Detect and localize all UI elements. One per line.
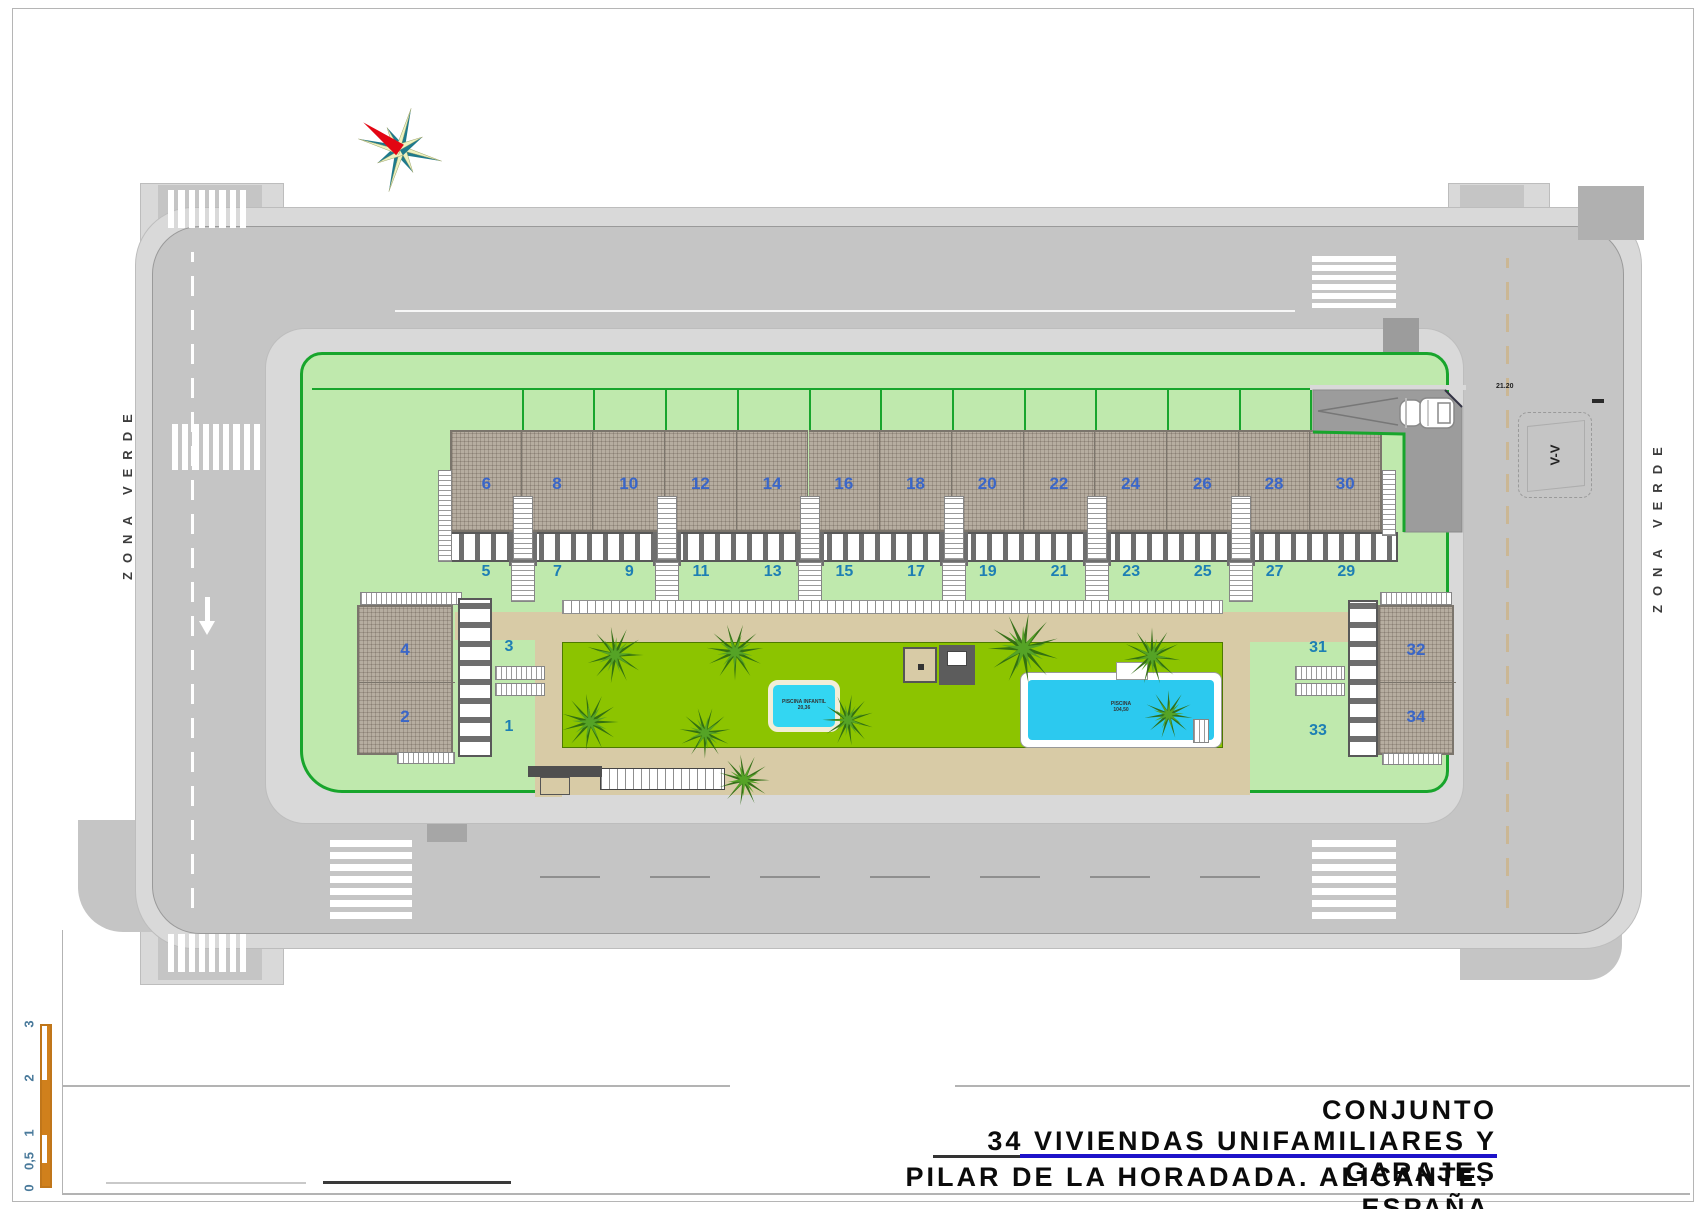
title-block-top-line [955,1085,1690,1087]
left-block-roof [357,605,453,755]
zebra-crossing-stripe [330,912,412,919]
zebra-crossing-stripe [330,900,412,907]
unit-number: 6 [482,474,491,494]
stair-shaft-lower [655,562,679,602]
zebra-crossing-stripe [1312,275,1396,281]
right-block-entry-strip [1382,753,1442,765]
stair-shaft-lower [1229,562,1253,602]
unit-number: 11 [693,563,710,581]
stair-shaft [657,496,677,560]
unit-number: 8 [552,474,561,494]
zebra-crossing-stripe [178,190,184,228]
left-block-garages [458,598,492,757]
stair-shaft-lower [511,562,535,602]
zebra-crossing-stripe [203,424,209,470]
zebra-crossing-stripe [330,888,412,895]
plot-divider [952,388,954,432]
plot-divider [1095,388,1097,432]
scale-bar [40,1024,52,1188]
bottom-road-lane-line [540,876,1300,878]
unit-number: 20 [978,474,997,494]
unit-number: 16 [834,474,853,494]
zebra-crossing-stripe [219,190,225,228]
zebra-crossing-stripe [230,934,236,972]
title-underline-blue [1020,1154,1497,1158]
stairs-left-a [495,666,545,680]
unit-number: 21 [1051,563,1069,581]
zebra-crossing-stripe [254,424,260,470]
site-plan-sheet: 6810121416182022242628305791113151719212… [0,0,1704,1209]
plot-divider [809,388,811,432]
stair-shaft [513,496,533,560]
zona-verde-right-label: ZONA VERDE [1650,428,1665,613]
unit-number: 9 [625,563,634,581]
zebra-crossing-stripe [1312,284,1396,290]
pump-room-dark [939,645,975,685]
kids-pool-area: 20,36 [798,705,811,711]
zebra-crossing-stripe [1312,876,1396,883]
unit-number: 10 [619,474,638,494]
unit-number: 27 [1266,563,1284,581]
zebra-crossing-stripe [168,190,174,228]
unit-number: 7 [553,563,562,581]
zebra-crossing-stripe [219,934,225,972]
zebra-crossing-stripe [1312,864,1396,871]
zebra-crossing-stripe [244,424,250,470]
palm-tree-icon [1122,626,1182,686]
frame-line [62,1085,730,1087]
stair-shaft-lower [798,562,822,602]
utility-block-top-right [1578,186,1644,240]
zebra-crossing-stripe [233,424,239,470]
project-location: PILAR DE LA HORADADA. ALICANTE. ESPAÑA [850,1162,1490,1209]
right-block-roof [1378,605,1454,755]
title-underline-dark [933,1155,1020,1158]
zebra-crossing-stripe [1312,265,1396,271]
unit-number: 32 [1407,640,1426,660]
plot-divider [522,388,524,432]
stair-shaft [1087,496,1107,560]
unit-number: 3 [505,638,514,656]
front-yard-line [312,388,1312,390]
plot-divider [665,388,667,432]
signature-line-dark [323,1181,511,1184]
house-roof: 22 [1024,430,1096,532]
palm-tree-icon [1143,689,1194,740]
main-pool-area: 104,50 [1113,707,1128,713]
road-tick [1592,399,1604,403]
right-block-garages [1348,600,1378,757]
unit-number: 34 [1407,707,1426,727]
pump-room-tan [903,647,937,683]
unit-number: 22 [1049,474,1068,494]
right-road-centerline [1506,258,1509,908]
zebra-crossing-stripe [230,190,236,228]
unit-number: 18 [906,474,925,494]
zona-verde-left-label: ZONA VERDE [120,400,135,580]
dimension-label: 21.20 [1496,383,1514,390]
unit-number: 19 [979,563,997,581]
scale-bar-label: 3 [22,1020,37,1027]
zebra-crossing-stripe [209,190,215,228]
zebra-crossing-stripe [189,190,195,228]
scale-bar-label: 1 [22,1129,37,1136]
palm-tree-icon [560,692,620,752]
zebra-crossing-stripe [1312,888,1396,895]
unit-number: 13 [764,563,782,581]
section-marker-label: V-V [1548,445,1563,466]
storage-row [600,768,725,790]
zebra-crossing-stripe [213,424,219,470]
zebra-crossing-stripe [1312,852,1396,859]
zebra-crossing-stripe [240,190,246,228]
zebra-crossing-stripe [182,424,188,470]
unit-number: 5 [481,563,490,581]
zebra-crossing-stripe [330,864,412,871]
stair-shaft [438,470,452,562]
house-roof: 18 [880,430,952,532]
zebra-crossing-stripe [1312,256,1396,262]
zebra-crossing-stripe [330,876,412,883]
zebra-crossing-stripe [189,934,195,972]
top-road-lane-line [395,310,1295,312]
zebra-crossing-stripe [209,934,215,972]
house-roof: 26 [1167,430,1239,532]
scale-bar-label: 2 [22,1074,37,1081]
car-icon [1400,398,1454,428]
unit-number: 1 [505,718,514,736]
frame-line-vertical [62,930,63,1194]
plot-divider [880,388,882,432]
zebra-crossing-stripe [1312,293,1396,299]
stair-shaft [1231,496,1251,560]
signature-line-light [106,1182,306,1184]
scale-bar-label: 0,5 [22,1152,37,1170]
zebra-crossing-stripe [192,424,198,470]
zebra-crossing-stripe [330,852,412,859]
section-marker: V-V [1518,412,1592,498]
stairs-right-a [1295,666,1345,680]
stair-shaft-lower [1085,562,1109,602]
zebra-crossing-stripe [199,934,205,972]
entrance-gate [540,777,570,795]
stairs-left-b [495,683,545,696]
palm-tree-icon [821,693,875,747]
unit-number: 14 [763,474,782,494]
zebra-crossing-stripe [1312,900,1396,907]
zebra-crossing-stripe [1312,912,1396,919]
plot-divider [593,388,595,432]
unit-number: 24 [1121,474,1140,494]
zebra-crossing-stripe [168,934,174,972]
stair-shaft [944,496,964,560]
zebra-crossing-stripe [172,424,178,470]
bus-bay-block [427,824,467,842]
unit-number: 4 [400,640,409,660]
compass-rose-icon [350,103,450,195]
house-roof: 6 [450,430,522,532]
left-block-pergola [360,592,462,605]
zebra-crossing-stripe [199,190,205,228]
stairs-right-b [1295,683,1345,696]
palm-tree-icon [678,706,732,760]
zebra-crossing-stripe [240,934,246,972]
house-roof: 10 [593,430,665,532]
unit-number: 26 [1193,474,1212,494]
left-block-entry-strip [397,752,455,764]
palm-tree-icon [705,622,765,682]
garage-row [446,532,1398,562]
unit-number: 15 [835,563,853,581]
stair-shaft [800,496,820,560]
zebra-crossing-stripe [1312,840,1396,847]
zebra-crossing-stripe [178,934,184,972]
unit-number: 28 [1265,474,1284,494]
traffic-arrow-icon [199,597,215,637]
pool-ladder [1193,719,1209,743]
scale-bar-label: 0 [22,1184,37,1191]
palm-tree-icon [986,611,1061,686]
plot-divider [1024,388,1026,432]
plot-divider [1167,388,1169,432]
unit-number: 12 [691,474,710,494]
unit-number: 29 [1337,563,1355,581]
plot-divider [737,388,739,432]
zebra-crossing-stripe [223,424,229,470]
stair-shaft-lower [942,562,966,602]
entrance-canopy [528,766,602,777]
project-title-line1: CONJUNTO [1000,1095,1497,1126]
unit-number: 33 [1309,722,1327,740]
driveway-entrance [1310,385,1466,535]
unit-number: 2 [400,707,409,727]
zebra-crossing-stripe [330,840,412,847]
right-block-pergola [1380,592,1452,605]
plot-divider [1239,388,1241,432]
unit-number: 17 [907,563,925,581]
unit-number: 31 [1309,639,1327,657]
walkway-right [1223,612,1250,748]
palm-tree-icon [585,625,645,685]
left-road-centerline [191,252,194,908]
palm-tree-icon [717,753,771,807]
unit-number: 25 [1194,563,1212,581]
house-roof: 14 [737,430,809,532]
unit-number: 23 [1122,563,1140,581]
garden-fence [562,600,1223,614]
zebra-crossing-stripe [1312,303,1396,309]
